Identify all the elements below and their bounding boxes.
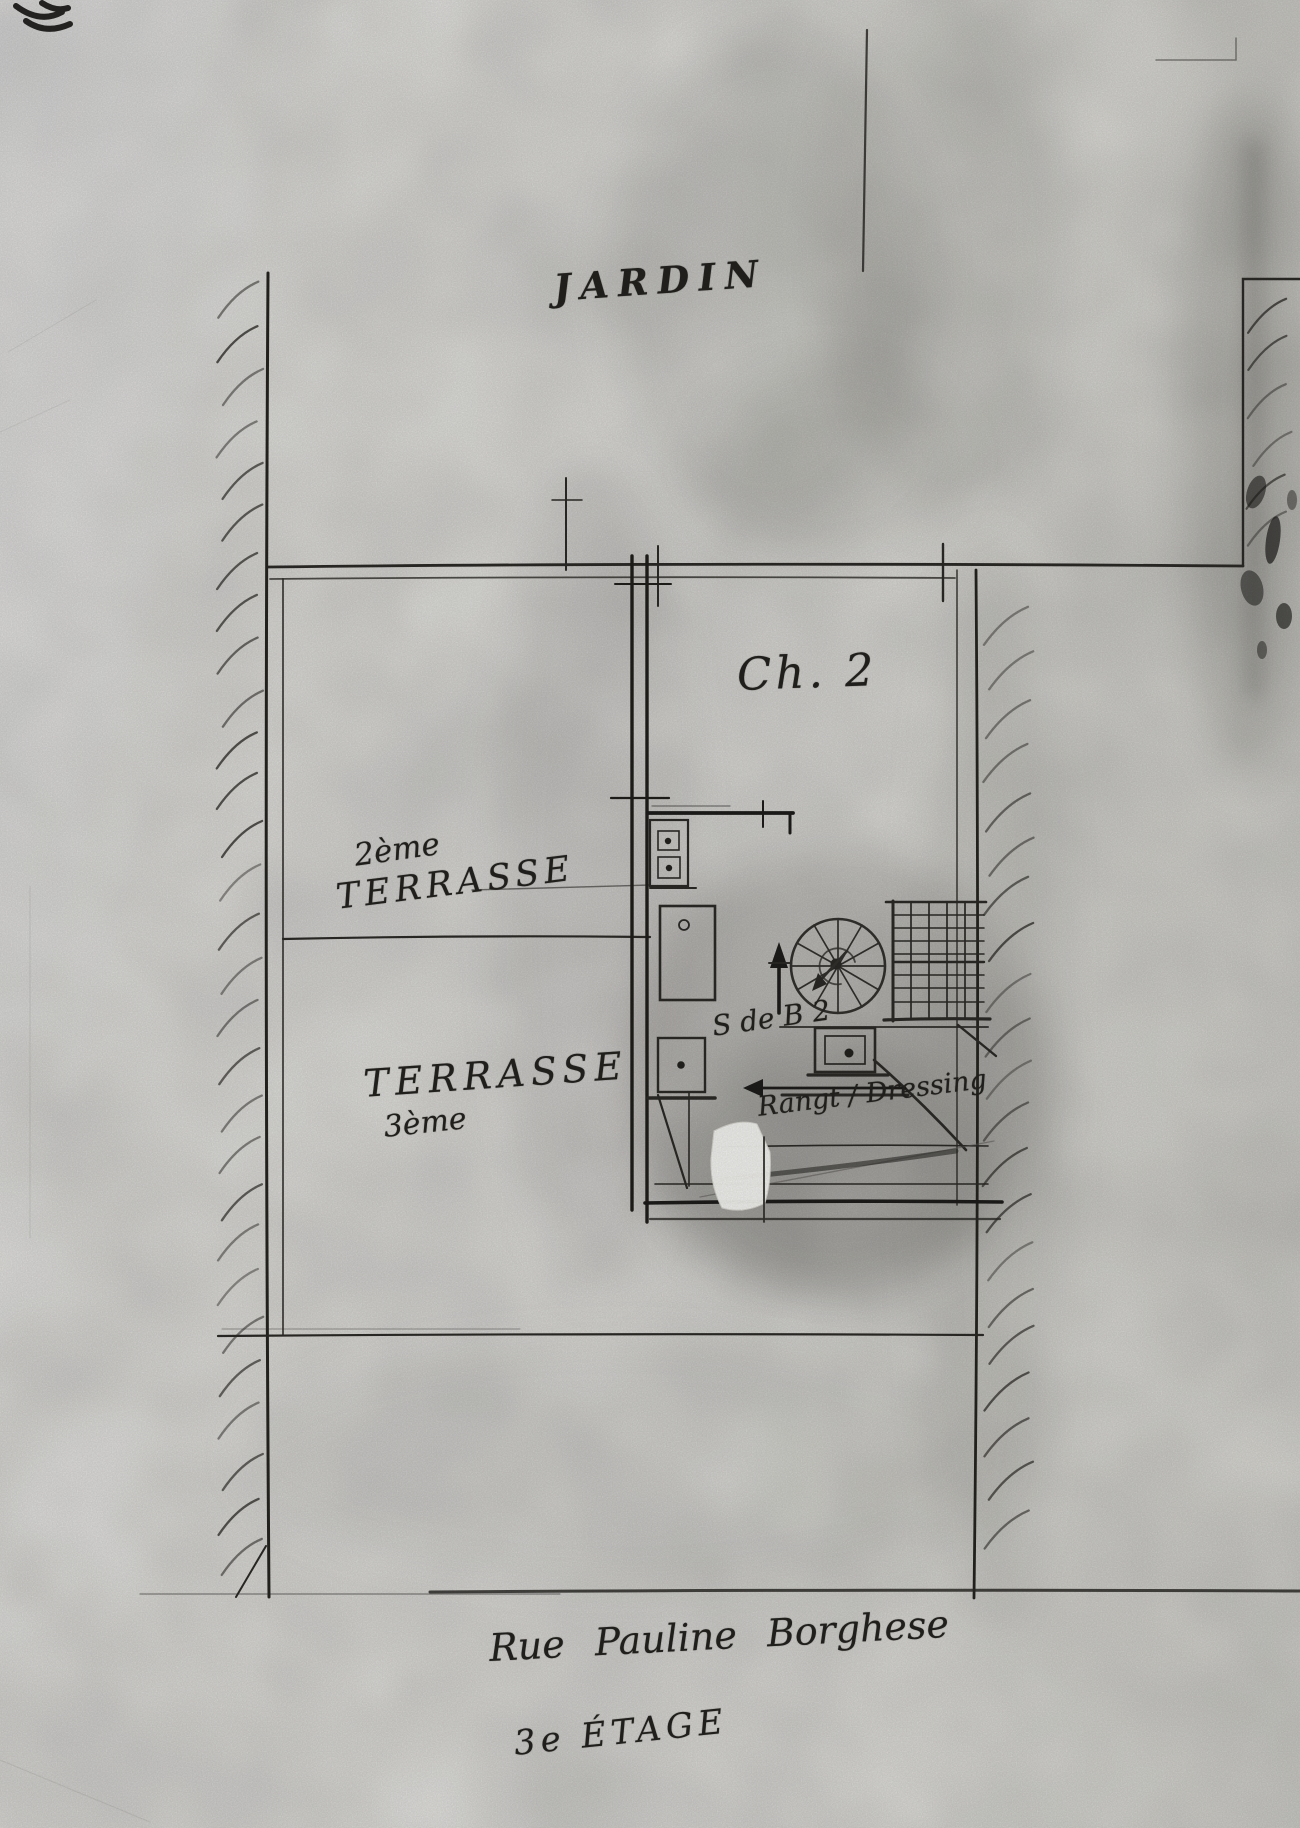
registration-marks-top-right bbox=[1156, 38, 1236, 60]
scan-noise-texture bbox=[0, 0, 1300, 1828]
top-right-hatching bbox=[1247, 299, 1292, 546]
scan-smudge bbox=[620, 850, 1050, 1290]
label-terrace2-ordinal: 2ème bbox=[352, 826, 442, 874]
kitchen-fixtures bbox=[648, 820, 715, 1188]
ink-blotches-top-right bbox=[1237, 473, 1297, 659]
label-terrace3: TERRASSE bbox=[362, 1044, 629, 1106]
toilet-fixture bbox=[782, 1028, 908, 1095]
right-wall-hatching bbox=[983, 607, 1034, 1549]
spiral-staircase bbox=[769, 919, 885, 1013]
scan-streak bbox=[1246, 140, 1262, 700]
label-floor-number: 3e ÉTAGE bbox=[512, 1702, 730, 1764]
label-bathroom-sdb2: S de B 2 bbox=[710, 993, 832, 1042]
label-bedroom-ch2: Ch. 2 bbox=[736, 643, 878, 701]
garden-boundary-line bbox=[268, 478, 1243, 606]
dressing-area-lines bbox=[645, 1141, 1002, 1219]
label-storage-dressing: Rangt / Dressing bbox=[756, 1064, 988, 1123]
scan-smudge bbox=[1180, 80, 1300, 780]
scan-smudge bbox=[660, 1040, 990, 1300]
scanned-floor-plan-page: JARDIN Ch. 2 2ème TERRASSE TERRASSE 3ème… bbox=[0, 0, 1300, 1828]
central-service-wall bbox=[611, 556, 671, 1222]
right-boundary-wall bbox=[957, 570, 978, 1598]
up-stairs-arrow bbox=[770, 942, 788, 1013]
scan-smudge bbox=[700, 360, 960, 560]
scan-smudge bbox=[920, 540, 1060, 1620]
left-wall-hatching bbox=[217, 282, 264, 1575]
stair-corner-diagonals bbox=[874, 1025, 996, 1150]
scan-smudge bbox=[240, 1340, 1000, 1580]
left-boundary-wall bbox=[266, 273, 269, 1597]
bathroom-walls bbox=[648, 801, 793, 833]
scan-smudge bbox=[820, 0, 1060, 520]
trellis-grid bbox=[780, 901, 990, 1027]
scan-tone-clouds bbox=[0, 0, 1300, 1828]
terrace-bottom-line bbox=[218, 1329, 983, 1336]
street-boundary-line bbox=[140, 1546, 1300, 1597]
ink-scribble-top-left bbox=[16, 3, 70, 29]
scan-smudge bbox=[500, 470, 690, 1290]
label-garden: JARDIN bbox=[552, 251, 769, 310]
label-street-name: Rue Pauline Borghese bbox=[488, 1602, 950, 1670]
top-center-wall-line bbox=[863, 30, 867, 271]
correction-fluid-patch bbox=[711, 1122, 771, 1222]
left-direction-arrow bbox=[743, 1079, 905, 1097]
floor-plan-linework bbox=[0, 0, 1300, 1828]
paper-crease-lines bbox=[0, 300, 150, 1822]
terrace-divider-line bbox=[283, 885, 650, 939]
label-terrace2: TERRASSE bbox=[334, 849, 577, 918]
label-terrace3-ordinal: 3ème bbox=[382, 1101, 468, 1144]
top-right-boundary-wall bbox=[1243, 279, 1300, 566]
scan-smudge bbox=[610, 30, 930, 530]
